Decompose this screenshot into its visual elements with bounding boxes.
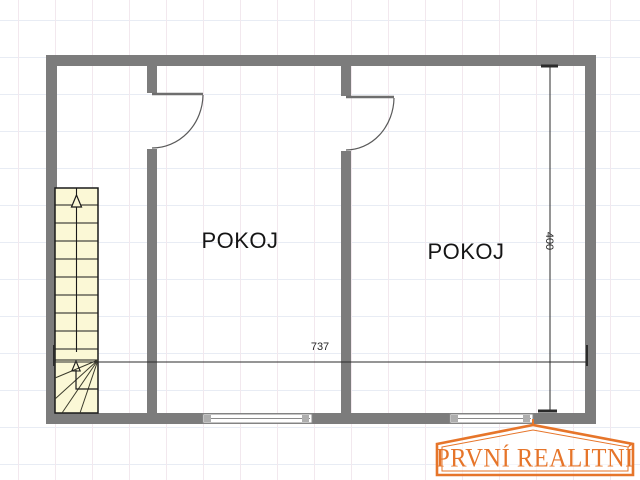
window-end-cap [204,415,211,422]
height-dimension-label: 400 [543,232,555,250]
window-end-cap [302,415,309,422]
floor-plan-canvas: POKOJ POKOJ 737 400 PRVNÍ REALITNÍ [0,0,640,480]
partition-wall-2-lower [341,151,351,413]
room-2-label: POKOJ [427,239,504,265]
window-1 [203,414,312,423]
wall-right [585,55,596,424]
partition-wall-1-upper [147,66,157,93]
agency-watermark: PRVNÍ REALITNÍ [433,417,637,479]
wall-top [46,55,596,66]
partition-wall-1-lower [147,149,157,413]
room-1-label: POKOJ [201,228,278,254]
outer-walls [46,55,596,424]
door-room-2 [346,97,394,150]
staircase [55,188,98,413]
agency-name: PRVNÍ REALITNÍ [431,445,639,474]
width-dimension-label: 737 [311,341,329,353]
partition-wall-2-upper [341,66,351,96]
door-swing-arc [346,98,394,150]
door-room-1 [152,94,203,148]
door-swing-arc [152,95,203,148]
